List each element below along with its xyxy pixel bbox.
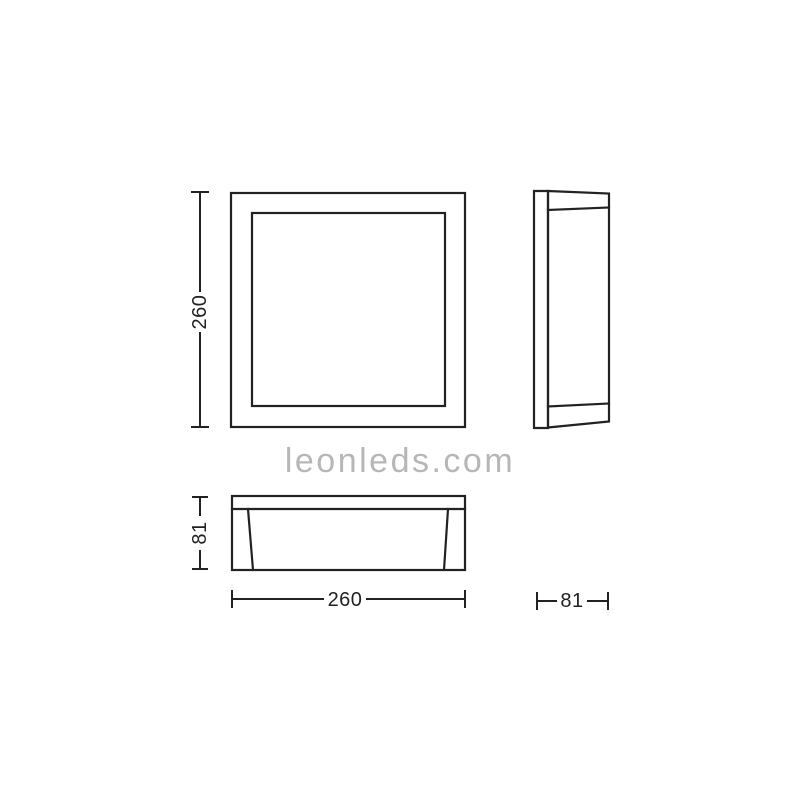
side-view [534, 191, 609, 428]
side-view-back-plate [534, 191, 548, 428]
front-view-outer-frame [231, 193, 465, 427]
dimension-diagram: 260 81 260 81 leonleds.com [0, 0, 800, 800]
bottom-view-left-bevel-line [248, 509, 253, 570]
side-view-bottom-bevel-line [548, 404, 609, 407]
bottom-view-outline [232, 496, 465, 570]
bottom-depth-dimension-label: 81 [190, 521, 210, 544]
bottom-view [232, 496, 465, 570]
watermark-text: leonleds.com [285, 444, 515, 478]
front-height-dimension-label: 260 [190, 295, 210, 330]
front-view-inner-frame [252, 213, 445, 406]
dimension-lines [192, 192, 608, 609]
bottom-width-dimension-label: 260 [328, 590, 363, 610]
technical-drawing [0, 0, 800, 800]
bottom-view-right-bevel-line [444, 509, 448, 570]
drawing-lines [192, 191, 609, 609]
side-view-top-bevel-line [548, 208, 609, 211]
side-view-body-outline [548, 191, 609, 428]
side-depth-dimension-label: 81 [560, 591, 583, 611]
front-view [231, 193, 465, 427]
